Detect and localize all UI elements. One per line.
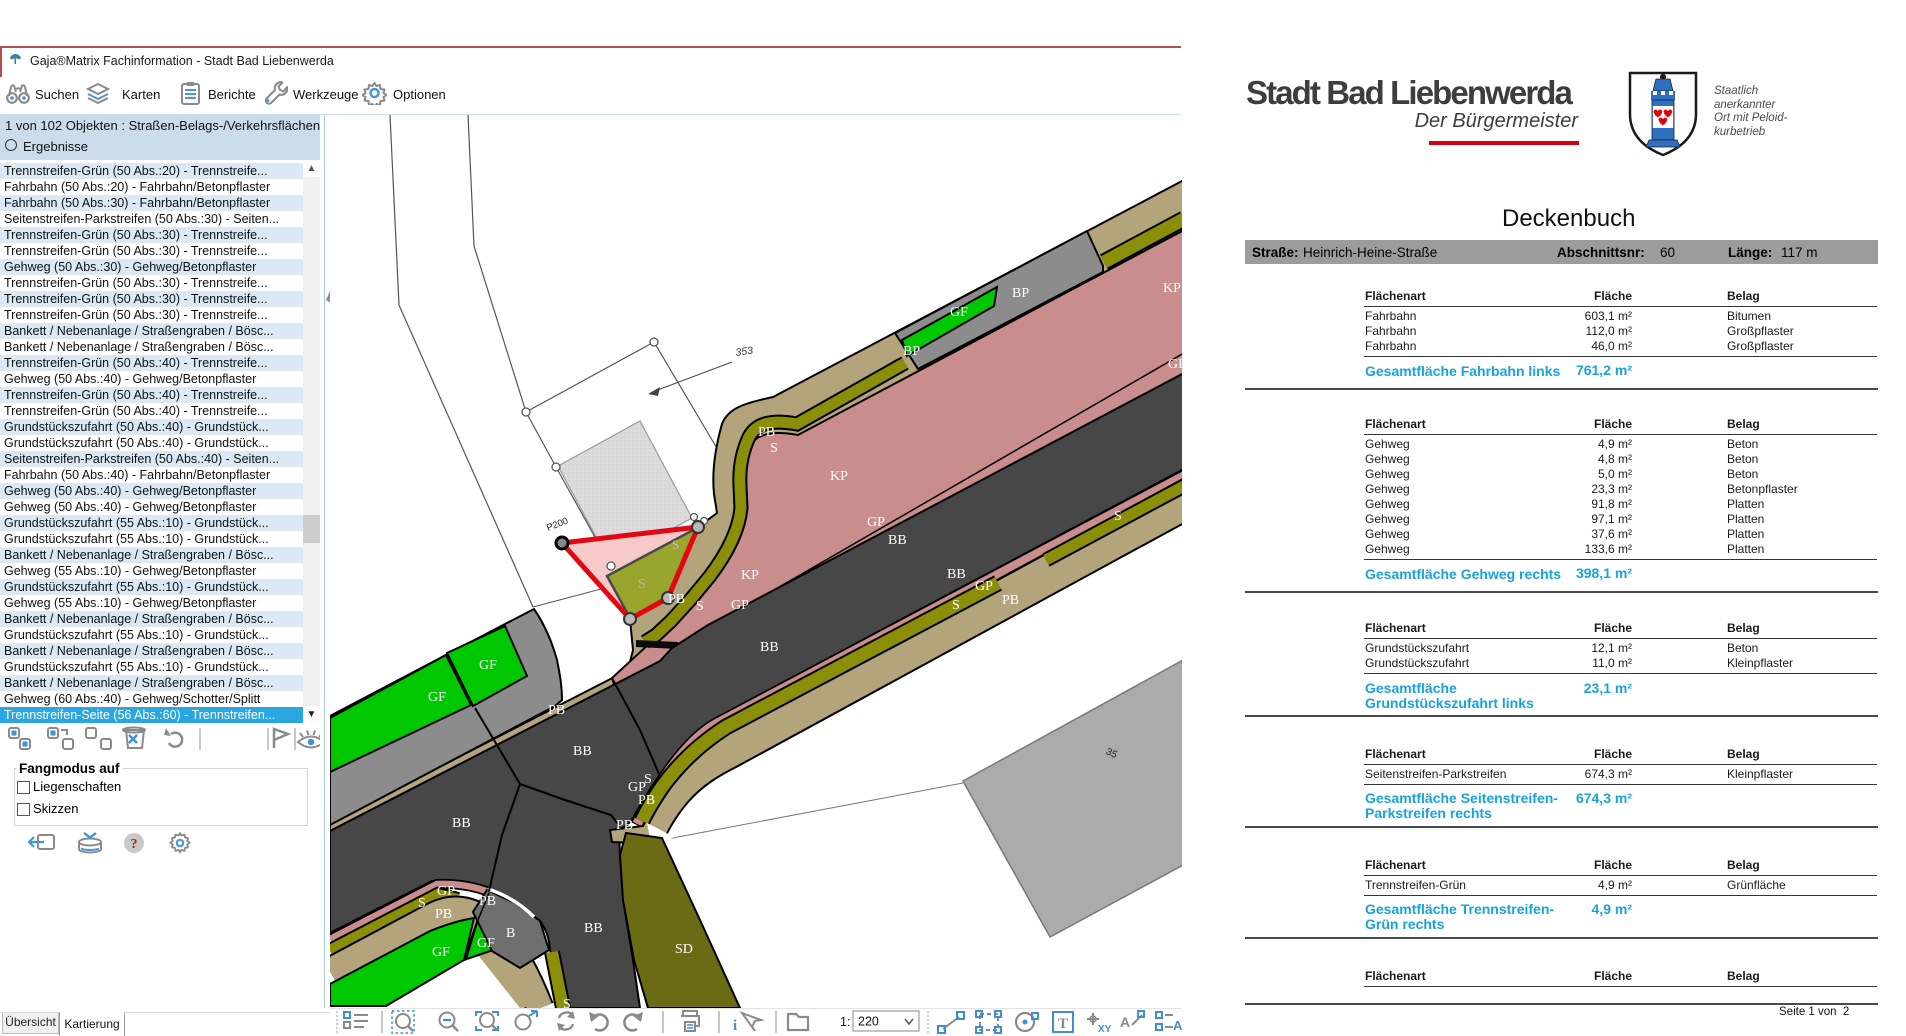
svg-text:BB: BB [584,921,603,936]
svg-text:S: S [638,577,646,592]
svg-text:GF: GF [479,658,497,673]
svg-text:SD: SD [675,942,693,957]
svg-text:S: S [952,598,960,613]
svg-text:PB: PB [668,592,685,607]
svg-text:S: S [418,896,426,911]
svg-text:BP: BP [1012,286,1029,301]
svg-text:XY: XY [1098,1024,1112,1035]
svg-text:PB: PB [479,894,496,909]
svg-text:BB: BB [947,567,966,582]
svg-text:220: 220 [858,1015,879,1029]
svg-text:GP: GP [1168,357,1182,372]
svg-text:?: ? [131,837,138,852]
svg-text:BP: BP [903,344,920,359]
svg-text:BB: BB [760,640,779,655]
svg-text:B: B [506,926,515,941]
svg-text:GP: GP [437,884,455,899]
svg-text:PB: PB [435,907,452,922]
svg-text:BB: BB [888,533,907,548]
svg-text:BB: BB [452,816,471,831]
svg-text:PB: PB [1002,593,1019,608]
svg-text:GP: GP [975,579,993,594]
svg-text:BB: BB [573,744,592,759]
svg-text:S: S [644,772,652,787]
svg-text:KP: KP [830,469,848,484]
svg-text:GF: GF [428,690,446,705]
svg-text:GF: GF [477,936,495,951]
svg-text:S: S [563,997,571,1008]
svg-text:S: S [696,599,704,614]
svg-text:GP: GP [731,598,749,613]
svg-text:PB: PB [548,703,565,718]
svg-text:1:: 1: [840,1015,850,1029]
svg-text:PB: PB [758,425,775,440]
svg-text:T: T [1058,1016,1068,1032]
svg-text:GP: GP [867,515,885,530]
svg-text:PB: PB [616,818,633,833]
svg-text:PB: PB [638,793,655,808]
svg-text:S: S [672,537,679,552]
svg-text:353: 353 [735,345,754,359]
svg-text:GF: GF [432,945,450,960]
svg-text:KP: KP [1163,281,1181,296]
svg-text:i: i [733,1018,737,1034]
svg-text:GF: GF [950,305,968,320]
svg-text:A: A [1120,1014,1130,1030]
svg-text:S: S [770,441,778,456]
svg-text:S: S [1114,509,1122,524]
svg-text:A: A [1173,1018,1182,1033]
svg-text:KP: KP [741,568,759,583]
